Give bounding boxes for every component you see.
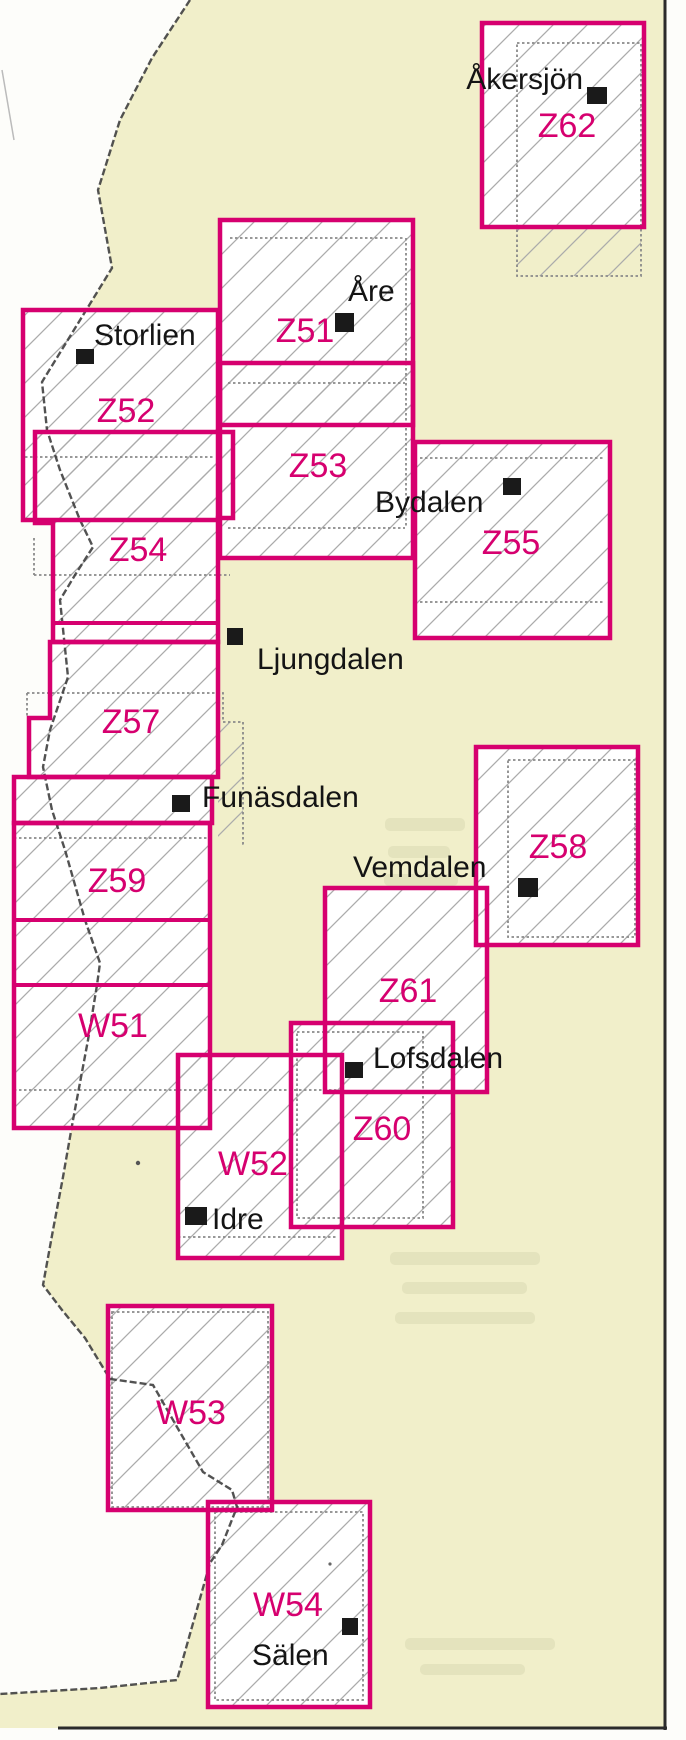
sheet-code-label-w53: W53 (156, 1394, 226, 1432)
sheet-code-label-z62: Z62 (538, 107, 597, 145)
sheet-code-label-z51: Z51 (276, 312, 335, 350)
place-marker-ljungdalen (227, 628, 243, 645)
place-label-akersjon: Åkersjön (466, 63, 583, 96)
place-label-idre: Idre (212, 1203, 264, 1236)
place-marker-lofsdalen (345, 1062, 363, 1078)
place-marker-salen (342, 1618, 358, 1635)
place-marker-storlien (76, 349, 94, 364)
place-marker-akersjon (587, 87, 607, 104)
place-label-vemdalen: Vemdalen (353, 851, 486, 884)
scan-speck (328, 1562, 331, 1565)
scan-scratch (2, 70, 14, 140)
sheet-code-label-z52: Z52 (97, 392, 156, 430)
scan-speck (136, 1161, 140, 1165)
place-marker-funasdalen (172, 795, 190, 812)
sheet-code-label-z53: Z53 (289, 447, 348, 485)
place-marker-vemdalen (518, 878, 538, 897)
sheet-code-label-z60: Z60 (353, 1110, 412, 1148)
sheet-code-label-z58: Z58 (529, 828, 588, 866)
place-marker-are (335, 313, 354, 332)
sheet-code-label-z59: Z59 (88, 862, 147, 900)
sheet-code-label-z57: Z57 (102, 703, 161, 741)
sheet-code-label-w54: W54 (253, 1586, 323, 1624)
place-marker-idre (185, 1207, 207, 1225)
place-label-funasdalen: Funäsdalen (202, 781, 359, 814)
sheet-code-label-w52: W52 (218, 1145, 288, 1183)
sheet-code-label-z55: Z55 (482, 524, 541, 562)
place-label-lofsdalen: Lofsdalen (373, 1042, 503, 1075)
sheet-code-label-z61: Z61 (379, 972, 438, 1010)
place-label-ljungdalen: Ljungdalen (257, 643, 404, 676)
sheet-code-label-w51: W51 (78, 1007, 148, 1045)
place-marker-bydalen (503, 478, 521, 495)
fjallkartan-index-map: Z62 Z51 Z52 Z53 Z54 Z55 Z57 Z58 Z59 W51 … (0, 0, 686, 1740)
place-label-storlien: Storlien (94, 319, 196, 352)
place-label-are: Åre (348, 275, 395, 308)
place-label-salen: Sälen (252, 1639, 329, 1672)
sheet-code-label-z54: Z54 (109, 531, 168, 569)
place-label-bydalen: Bydalen (375, 486, 483, 519)
map-index-scan: Z62 Z51 Z52 Z53 Z54 Z55 Z57 Z58 Z59 W51 … (0, 0, 686, 1740)
